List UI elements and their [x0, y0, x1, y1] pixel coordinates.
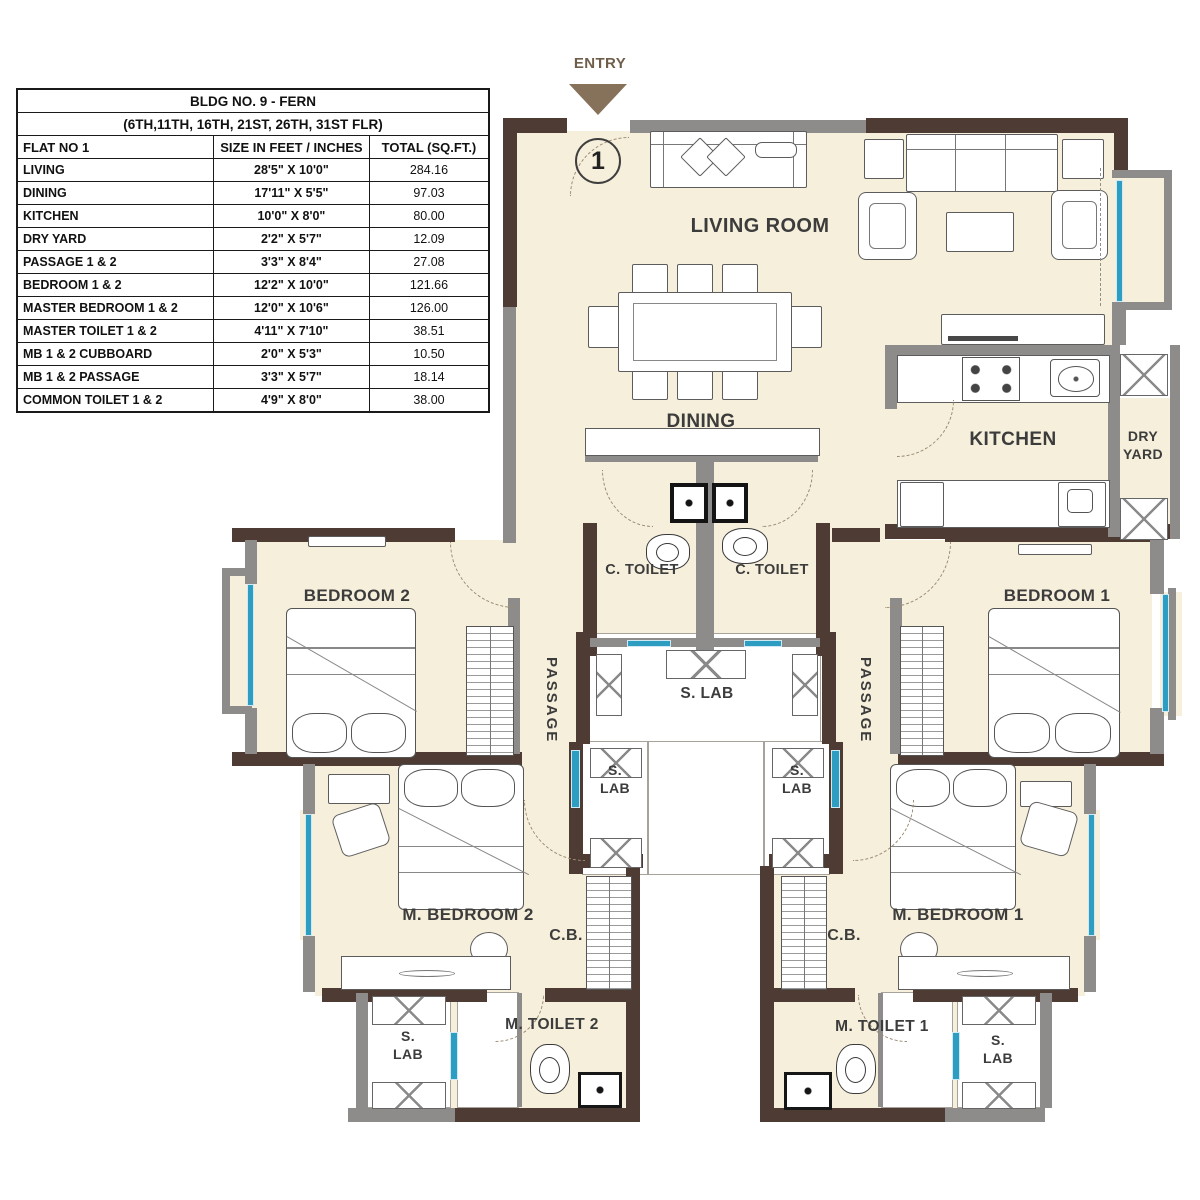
label-passage-left: PASSAGE [536, 640, 560, 760]
row-total: 10.50 [369, 343, 489, 366]
cushion [755, 142, 797, 158]
shower [578, 1072, 622, 1108]
wall [303, 764, 315, 814]
balcony-rail [222, 706, 252, 714]
wall [503, 118, 567, 133]
sofa [906, 134, 1058, 192]
toilet-wc [836, 1044, 876, 1094]
row-room: DRY YARD [17, 228, 213, 251]
wardrobe [900, 626, 944, 756]
fridge [1058, 482, 1106, 527]
wall [303, 936, 315, 992]
label-m-toilet-2: M. TOILET 2 [488, 1015, 616, 1034]
wall [348, 1108, 455, 1122]
wall [1084, 936, 1096, 992]
curtain-line [1100, 168, 1101, 306]
label-cb-left: C.B. [542, 926, 590, 946]
balcony-rail [1168, 588, 1176, 720]
tv [948, 336, 1018, 341]
wall [1040, 993, 1052, 1108]
wall [1084, 764, 1096, 814]
toilet-wc [722, 528, 768, 564]
row-size: 2'0" X 5'3" [213, 343, 369, 366]
row-size: 12'0" X 10'6" [213, 297, 369, 320]
bed [890, 764, 1016, 910]
row-room: PASSAGE 1 & 2 [17, 251, 213, 274]
label-passage-right: PASSAGE [850, 640, 874, 760]
label-c-toilet-right: C. TOILET [726, 561, 818, 579]
label-c-toilet-left: C. TOILET [596, 561, 688, 579]
table-subtitle: (6TH,11TH, 16TH, 21ST, 26TH, 31ST FLR) [17, 113, 489, 136]
wall [760, 988, 855, 1002]
row-size: 28'5" X 10'0" [213, 159, 369, 182]
row-total: 121.66 [369, 274, 489, 297]
window [831, 750, 840, 808]
row-room: LIVING [17, 159, 213, 182]
shower [784, 1072, 832, 1110]
table-row: PASSAGE 1 & 23'3" X 8'4"27.08 [17, 251, 489, 274]
wall [356, 993, 368, 1108]
s-lab-hatch [666, 650, 746, 679]
label-s-lab-right: S. LAB [774, 762, 820, 797]
table-row: BEDROOM 1 & 212'2" X 10'0"121.66 [17, 274, 489, 297]
row-room: COMMON TOILET 1 & 2 [17, 389, 213, 413]
desk [328, 774, 390, 804]
row-size: 3'3" X 8'4" [213, 251, 369, 274]
coffee-table [946, 212, 1014, 252]
label-cb-right: C.B. [820, 926, 868, 946]
wall [545, 988, 640, 1002]
window [1116, 180, 1123, 302]
label-s-lab-m2: S. LAB [384, 1028, 432, 1063]
dining-chair [632, 368, 668, 400]
wall [885, 345, 897, 409]
table-row: DINING17'11" X 5'5"97.03 [17, 182, 489, 205]
s-lab-hatch [596, 654, 622, 716]
row-total: 38.51 [369, 320, 489, 343]
col-flat: FLAT NO 1 [17, 136, 213, 159]
flat-number-marker: 1 [575, 138, 621, 184]
row-size: 2'2" X 5'7" [213, 228, 369, 251]
row-room: MB 1 & 2 CUBBOARD [17, 343, 213, 366]
dry-yard-hatch [1120, 498, 1168, 540]
dining-chair [722, 368, 758, 400]
table-header-row: FLAT NO 1 SIZE IN FEET / INCHES TOTAL (S… [17, 136, 489, 159]
window [450, 1032, 458, 1080]
label-bedroom-1: BEDROOM 1 [993, 585, 1121, 606]
stove [962, 357, 1020, 401]
dining-chair [790, 306, 822, 348]
toilet-wc [530, 1044, 570, 1094]
bed [988, 608, 1120, 758]
row-room: DINING [17, 182, 213, 205]
window [1088, 814, 1095, 936]
row-room: BEDROOM 1 & 2 [17, 274, 213, 297]
dressing-table [898, 956, 1070, 990]
label-m-bedroom-2: M. BEDROOM 2 [388, 904, 548, 925]
wall-shelf [1018, 544, 1092, 555]
side-table [864, 139, 904, 179]
dressing-table [341, 956, 511, 990]
s-lab-hatch [372, 996, 446, 1025]
table-row: MASTER BEDROOM 1 & 212'0" X 10'6"126.00 [17, 297, 489, 320]
kitchen-sink [1050, 359, 1100, 397]
label-living-room: LIVING ROOM [660, 214, 860, 239]
s-lab-hatch [962, 1082, 1036, 1109]
wall [945, 1108, 1045, 1122]
table-row: MB 1 & 2 PASSAGE3'3" X 5'7"18.14 [17, 366, 489, 389]
dry-yard-hatch [1120, 354, 1168, 396]
row-room: MASTER TOILET 1 & 2 [17, 320, 213, 343]
row-total: 27.08 [369, 251, 489, 274]
window [247, 584, 254, 706]
row-size: 4'9" X 8'0" [213, 389, 369, 413]
wall [245, 708, 257, 754]
wall [455, 1108, 640, 1122]
row-size: 17'11" X 5'5" [213, 182, 369, 205]
row-size: 4'11" X 7'10" [213, 320, 369, 343]
wall [503, 133, 517, 307]
row-size: 12'2" X 10'0" [213, 274, 369, 297]
wall [576, 632, 590, 744]
table-row: MB 1 & 2 CUBBOARD2'0" X 5'3"10.50 [17, 343, 489, 366]
s-lab-hatch [792, 654, 818, 716]
wash-basin [712, 483, 748, 523]
balcony-rail [1164, 170, 1172, 310]
row-total: 80.00 [369, 205, 489, 228]
dining-chair [677, 368, 713, 400]
wardrobe [466, 626, 514, 756]
cupboard [586, 876, 632, 990]
wash-basin [670, 483, 708, 523]
balcony-rail [222, 568, 230, 714]
balcony-rail [1112, 302, 1172, 310]
row-size: 10'0" X 8'0" [213, 205, 369, 228]
wall [245, 540, 257, 584]
bed [286, 608, 416, 758]
wall [1150, 708, 1164, 754]
window [952, 1032, 960, 1080]
desk [1020, 781, 1072, 807]
table-row: DRY YARD2'2" X 5'7"12.09 [17, 228, 489, 251]
window [1162, 594, 1169, 712]
row-total: 284.16 [369, 159, 489, 182]
label-kitchen: KITCHEN [958, 428, 1068, 452]
dining-chair [588, 306, 620, 348]
table-row: COMMON TOILET 1 & 24'9" X 8'0"38.00 [17, 389, 489, 413]
table-row: LIVING28'5" X 10'0"284.16 [17, 159, 489, 182]
wall [503, 307, 516, 543]
label-m-toilet-1: M. TOILET 1 [818, 1017, 946, 1036]
wall [832, 528, 880, 542]
window [627, 640, 671, 647]
table-row: MASTER TOILET 1 & 24'11" X 7'10"38.51 [17, 320, 489, 343]
wall [760, 1108, 945, 1122]
entry-label: ENTRY [565, 55, 635, 74]
wall-shelf [308, 536, 386, 547]
duct-center [649, 742, 763, 874]
side-table [1062, 139, 1104, 179]
row-total: 97.03 [369, 182, 489, 205]
balcony-rail [1112, 170, 1172, 178]
col-total: TOTAL (SQ.FT.) [369, 136, 489, 159]
bed [398, 764, 524, 910]
entry-arrow-icon [569, 84, 627, 115]
area-table: BLDG NO. 9 - FERN (6TH,11TH, 16TH, 21ST,… [16, 88, 490, 413]
table-title: BLDG NO. 9 - FERN [17, 89, 489, 113]
wall [866, 118, 1128, 133]
table-row: KITCHEN10'0" X 8'0"80.00 [17, 205, 489, 228]
row-total: 126.00 [369, 297, 489, 320]
label-s-lab-left: S. LAB [592, 762, 638, 797]
floor-plan-page: BLDG NO. 9 - FERN (6TH,11TH, 16TH, 21ST,… [0, 0, 1200, 1200]
label-s-lab-m1: S. LAB [974, 1032, 1022, 1067]
label-dry-yard: DRY YARD [1114, 428, 1172, 463]
row-room: MASTER BEDROOM 1 & 2 [17, 297, 213, 320]
row-room: MB 1 & 2 PASSAGE [17, 366, 213, 389]
wall [590, 638, 820, 647]
wall [1150, 540, 1164, 594]
wall [885, 345, 1110, 355]
wall [1112, 310, 1126, 345]
col-size: SIZE IN FEET / INCHES [213, 136, 369, 159]
dining-table [618, 292, 792, 372]
row-room: KITCHEN [17, 205, 213, 228]
row-total: 12.09 [369, 228, 489, 251]
label-dining: DINING [651, 410, 751, 434]
window [305, 814, 312, 936]
washing-machine [900, 482, 944, 527]
row-total: 18.14 [369, 366, 489, 389]
s-lab-hatch [772, 838, 824, 868]
armchair [858, 192, 917, 260]
label-m-bedroom-1: M. BEDROOM 1 [878, 904, 1038, 925]
s-lab-hatch [962, 996, 1036, 1025]
window [744, 640, 782, 647]
label-bedroom-2: BEDROOM 2 [293, 585, 421, 606]
row-size: 3'3" X 5'7" [213, 366, 369, 389]
s-lab-hatch [590, 838, 642, 868]
wall [822, 632, 836, 744]
s-lab-hatch [372, 1082, 446, 1109]
flat-number: 1 [591, 147, 605, 176]
row-total: 38.00 [369, 389, 489, 413]
label-s-lab-center: S. LAB [668, 684, 746, 703]
